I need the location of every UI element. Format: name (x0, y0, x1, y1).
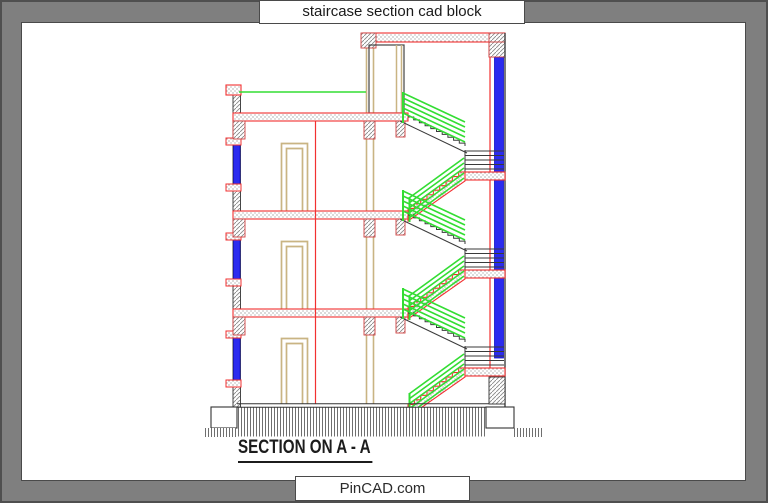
stair-storeys (233, 92, 505, 418)
window-glazing (234, 145, 240, 380)
section-caption: SECTION ON A - A (238, 437, 372, 463)
title-bar: staircase section cad block (259, 0, 525, 24)
watermark-text: PinCAD.com (340, 480, 426, 497)
page-frame: staircase section cad block (0, 0, 768, 503)
page-title: staircase section cad block (302, 3, 481, 20)
door-frames (282, 144, 308, 405)
staircase-section-drawing (0, 0, 768, 503)
watermark-box: PinCAD.com (295, 476, 470, 501)
